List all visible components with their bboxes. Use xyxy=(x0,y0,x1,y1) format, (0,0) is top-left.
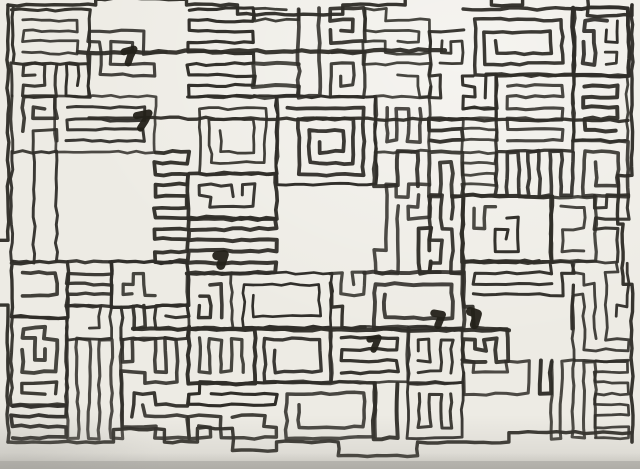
corner-shadow xyxy=(0,300,320,469)
paper-edge-band xyxy=(0,461,640,469)
photo-of-maze-drawing xyxy=(0,0,640,469)
maze-drawing xyxy=(0,0,640,469)
